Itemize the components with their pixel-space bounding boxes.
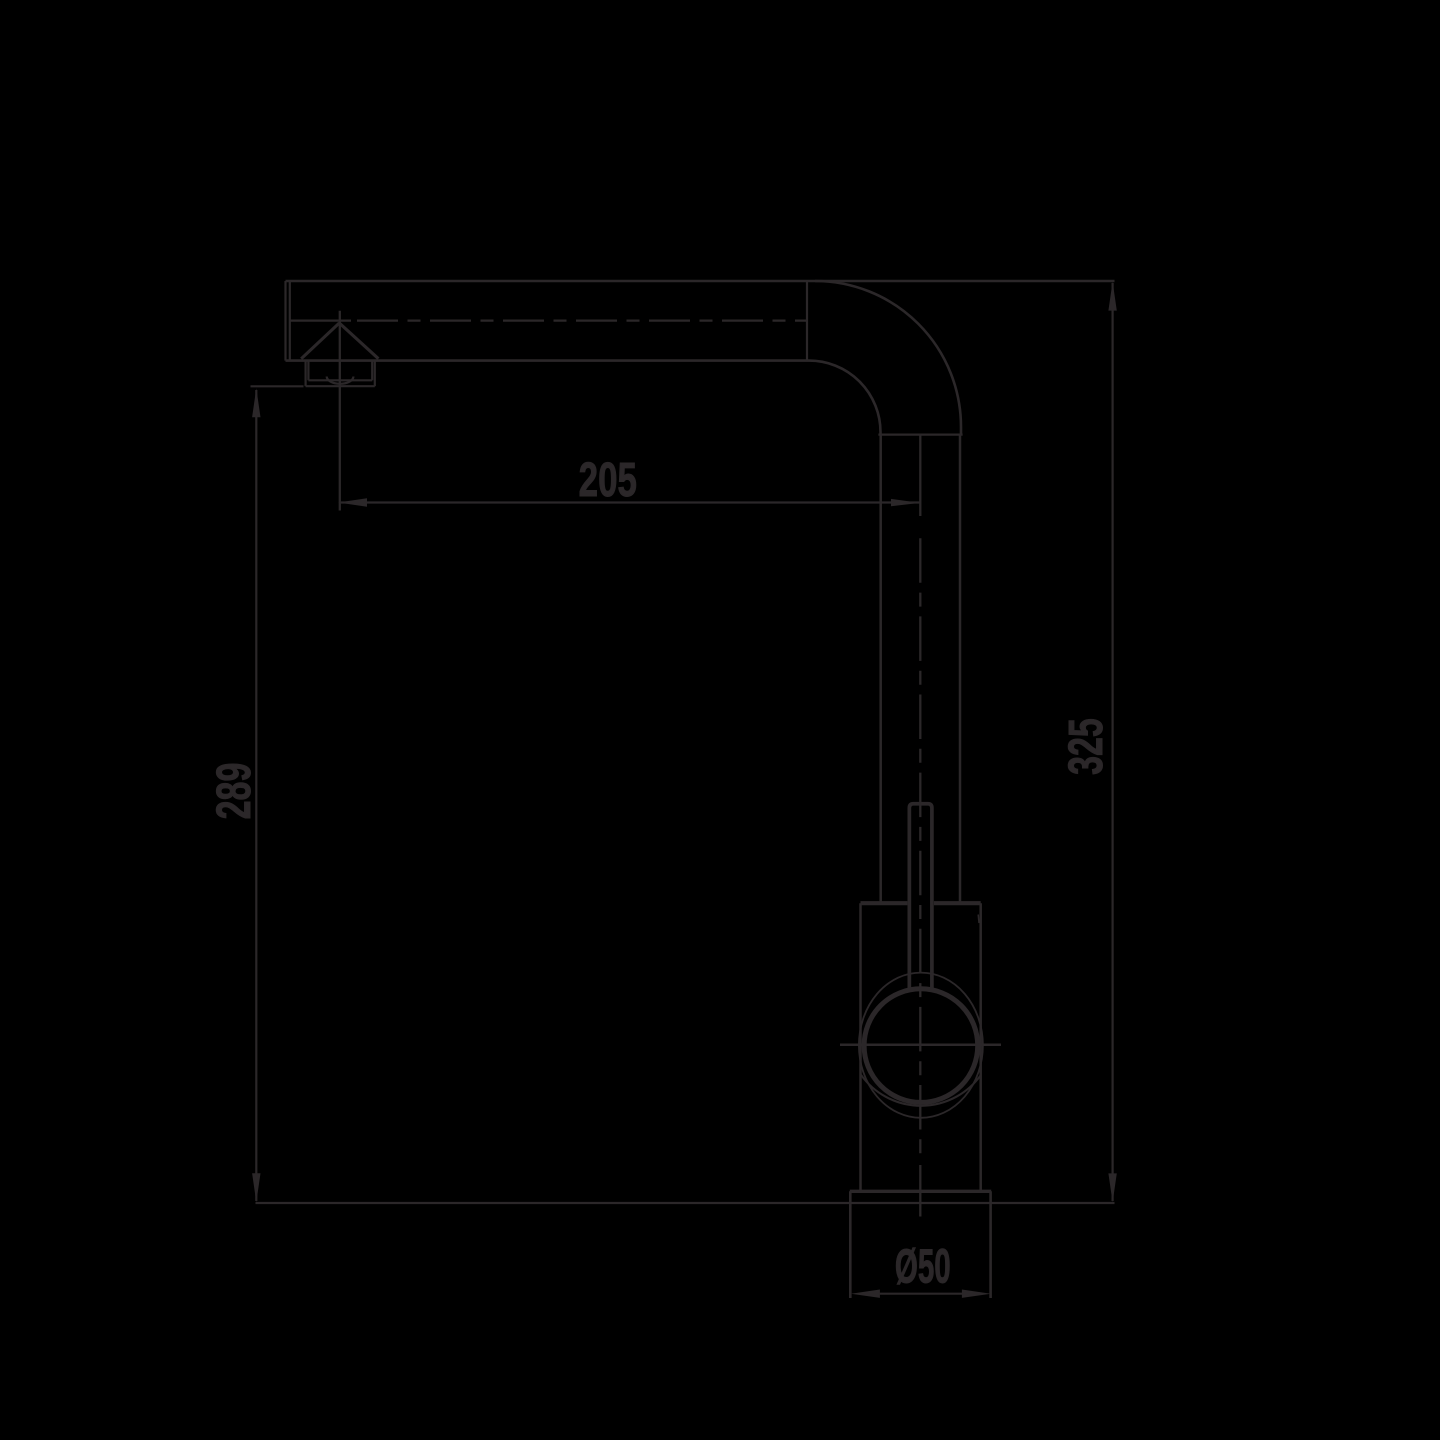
svg-text:289: 289 (206, 763, 260, 820)
svg-text:Ø50: Ø50 (895, 1239, 951, 1293)
svg-text:325: 325 (1058, 718, 1112, 775)
svg-text:205: 205 (579, 452, 637, 506)
